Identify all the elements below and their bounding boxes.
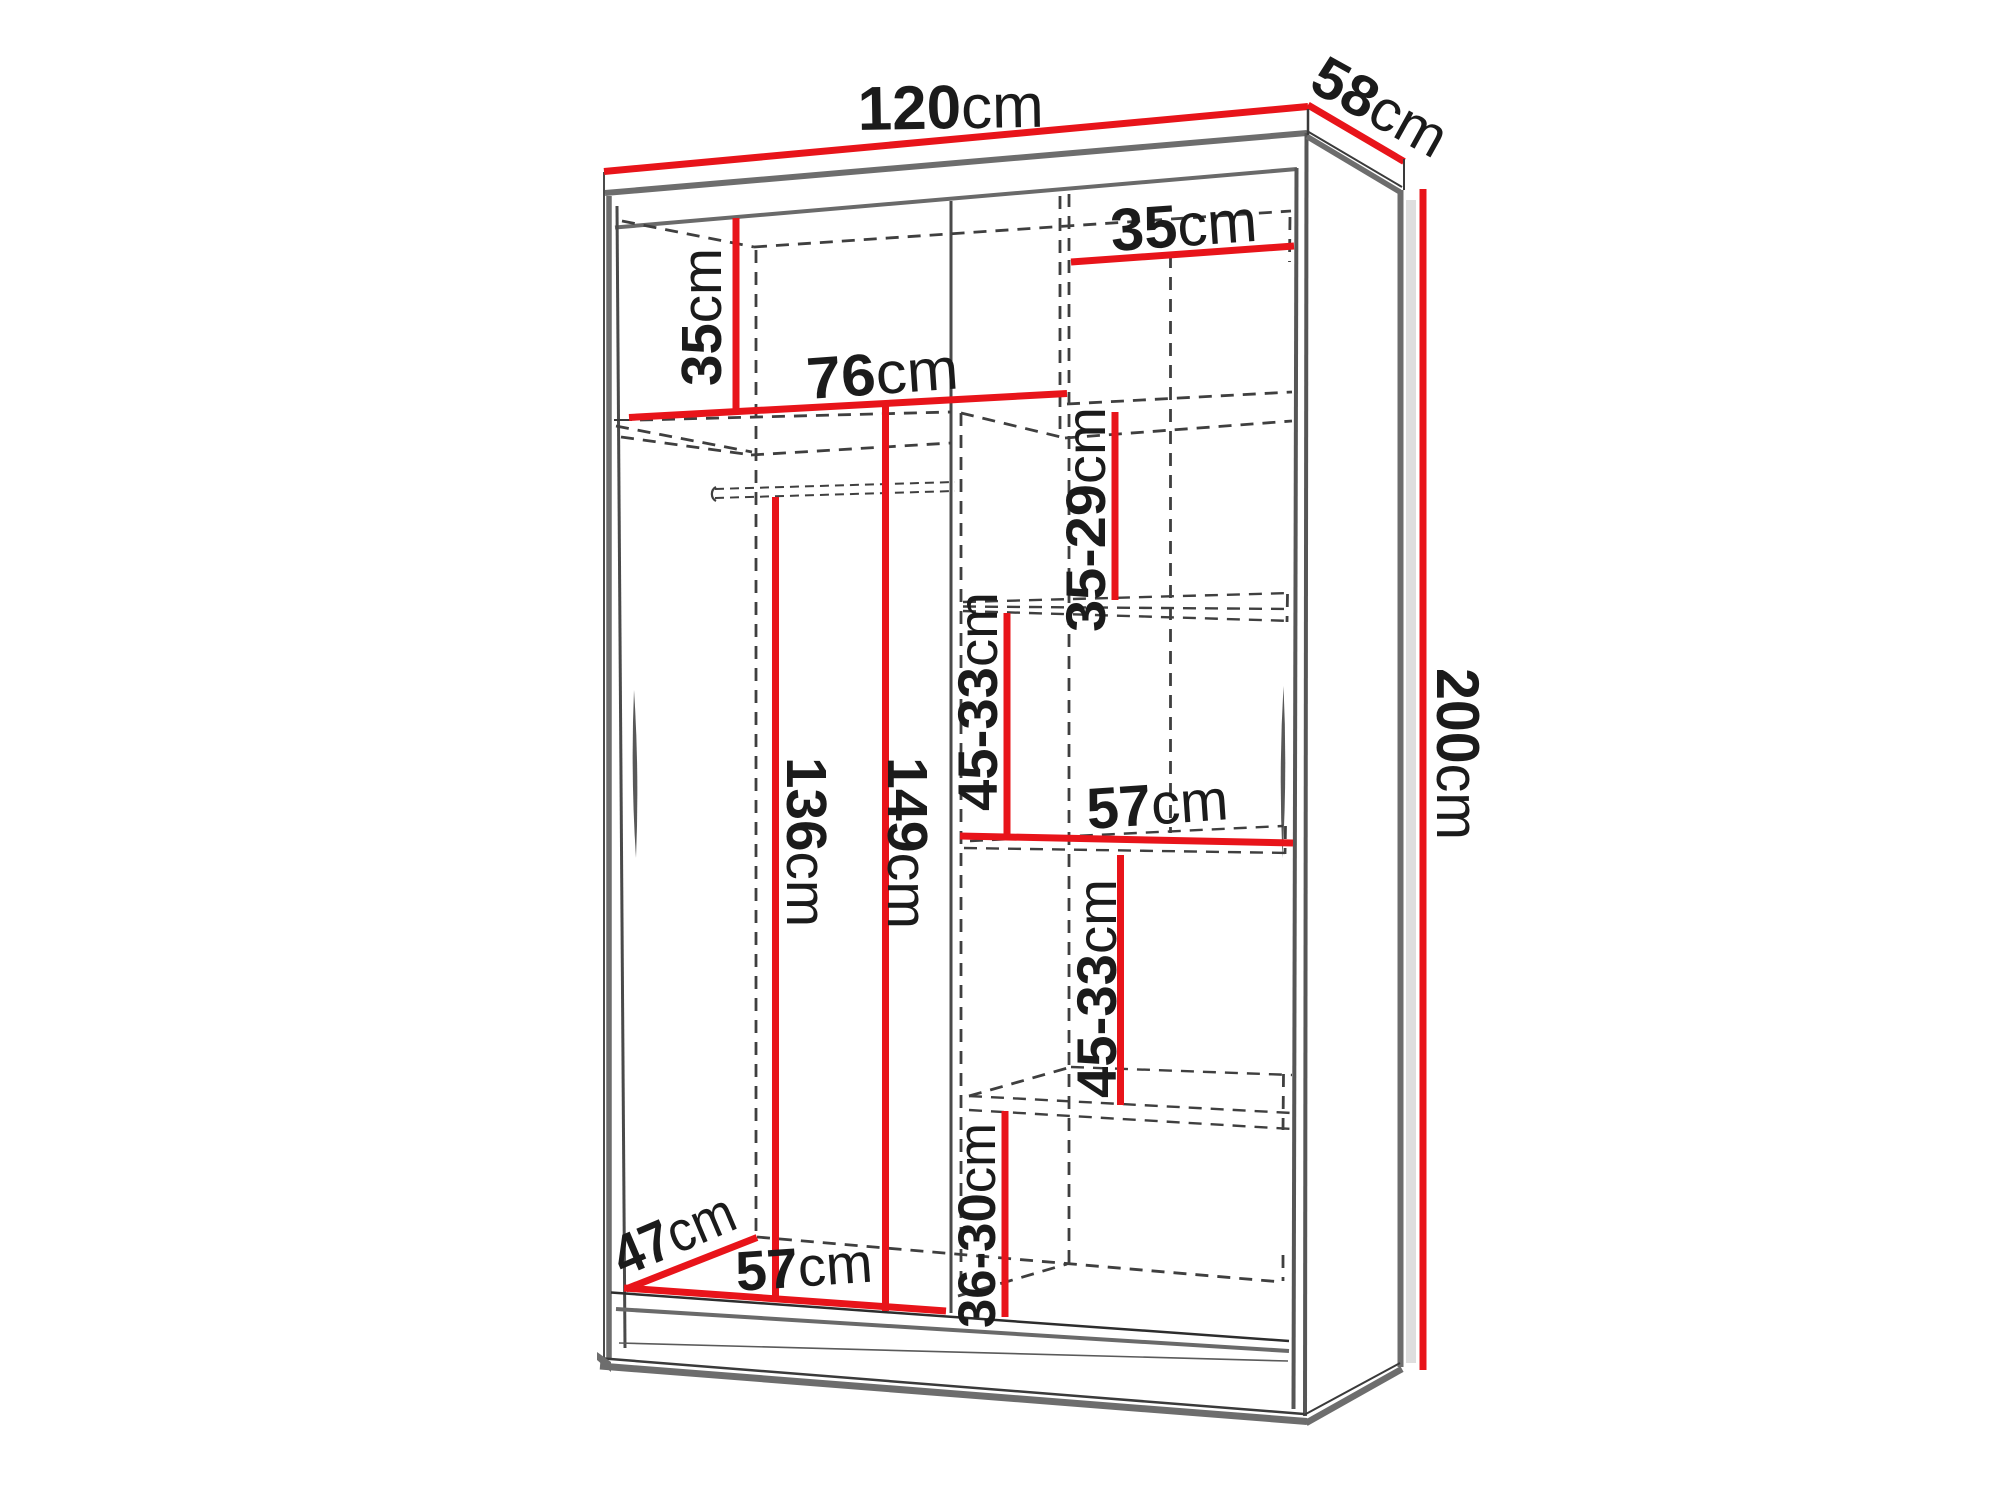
svg-text:149cm: 149cm (875, 757, 939, 929)
svg-text:120cm: 120cm (857, 72, 1044, 144)
svg-text:35cm: 35cm (1108, 187, 1259, 264)
svg-text:35cm: 35cm (670, 248, 734, 386)
svg-text:200cm: 200cm (1424, 668, 1491, 840)
svg-text:36-30cm: 36-30cm (948, 1123, 1007, 1328)
svg-text:35-29cm: 35-29cm (1054, 407, 1117, 632)
svg-text:76cm: 76cm (804, 336, 960, 412)
svg-text:136cm: 136cm (774, 757, 838, 927)
svg-text:45-33cm: 45-33cm (946, 592, 1009, 811)
svg-text:57cm: 57cm (1084, 767, 1230, 842)
svg-text:57cm: 57cm (733, 1231, 874, 1303)
svg-text:45-33cm: 45-33cm (1065, 879, 1128, 1098)
